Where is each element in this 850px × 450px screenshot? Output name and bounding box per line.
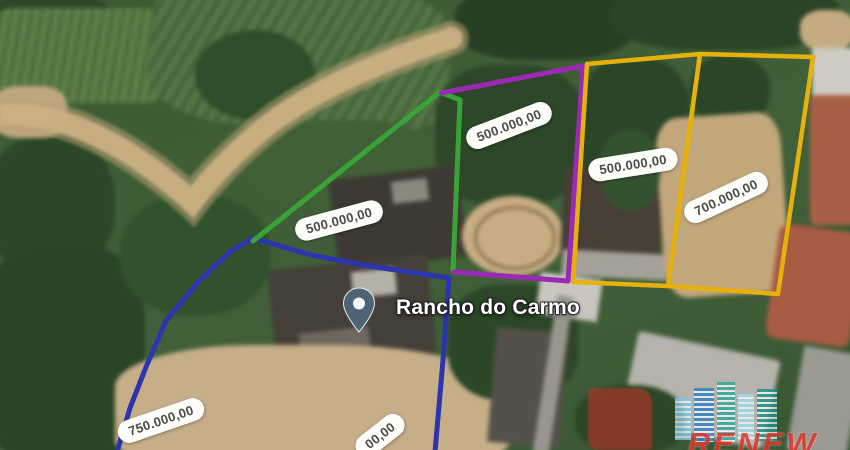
brand-watermark: RENEW xyxy=(585,380,850,450)
partial-logo-graphic xyxy=(588,388,652,450)
parcel-outline-yellow-right xyxy=(668,54,813,294)
place-label: Rancho do Carmo xyxy=(396,296,580,320)
parcel-outline-purple xyxy=(441,66,583,281)
parcel-outline-green xyxy=(253,92,460,271)
satellite-map: 500.000,00 500.000,00 500.000,00 700.000… xyxy=(0,0,850,450)
map-pin-icon xyxy=(341,286,377,334)
brand-name: RENEW xyxy=(688,426,818,450)
